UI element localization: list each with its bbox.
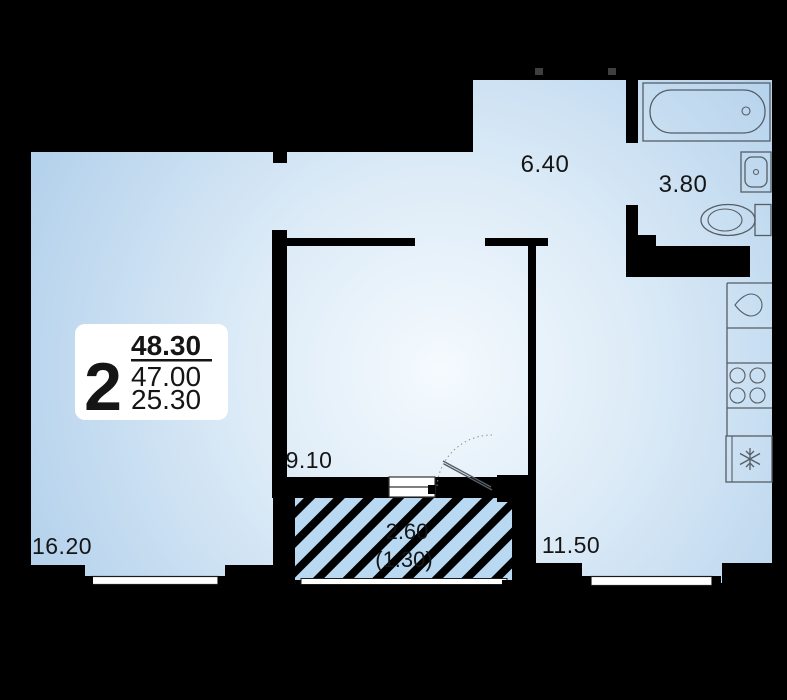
bathroom-floor (638, 80, 772, 247)
sill-end (428, 485, 435, 494)
wall (528, 246, 536, 475)
bathroom-area-label: 3.80 (659, 171, 708, 198)
balcony-window-block (389, 477, 435, 497)
wall (272, 477, 388, 498)
balcony-coefficient-area-label: (1.30) (375, 547, 432, 572)
wall (497, 475, 530, 502)
sill-end (582, 576, 591, 586)
balcony-area-label: 2.60 (386, 519, 429, 544)
top-wall-tick (608, 68, 616, 75)
bathroom-doorway-floor (626, 143, 638, 205)
sill (92, 577, 218, 585)
kitchen-area-label: 11.50 (542, 532, 600, 558)
living-room-doorway-floor (273, 163, 287, 230)
rail (301, 579, 507, 585)
floor-plan-canvas: 16.20 9.10 6.40 3.80 11.50 2.60 (1.30) 2… (0, 0, 787, 700)
floor-plan-svg: 16.20 9.10 6.40 3.80 11.50 2.60 (1.30) 2… (0, 0, 787, 700)
wall (485, 238, 548, 246)
living-area-label: 25.30 (131, 384, 201, 415)
apartment-info-box: 2 48.30 47.00 25.30 (75, 324, 228, 425)
hallway-area-label: 6.40 (521, 151, 570, 178)
sill-end (712, 576, 721, 586)
wall (287, 238, 415, 246)
wall (273, 152, 287, 163)
sill-end (218, 576, 226, 585)
living-room-area-label: 16.20 (32, 533, 92, 559)
window-sill-kitchen (582, 576, 721, 586)
wall (626, 80, 638, 143)
bedroom-floor (287, 246, 528, 477)
wall (648, 246, 750, 277)
sill (591, 577, 712, 586)
window-sill-living-room (85, 576, 226, 585)
room-count-label: 2 (84, 349, 122, 425)
passage-floor (750, 235, 772, 281)
sill-end (85, 576, 93, 585)
top-wall-tick (535, 68, 543, 75)
rail-end (502, 580, 513, 592)
bedroom-area-label: 9.10 (286, 447, 333, 473)
total-area-label: 48.30 (131, 330, 201, 361)
